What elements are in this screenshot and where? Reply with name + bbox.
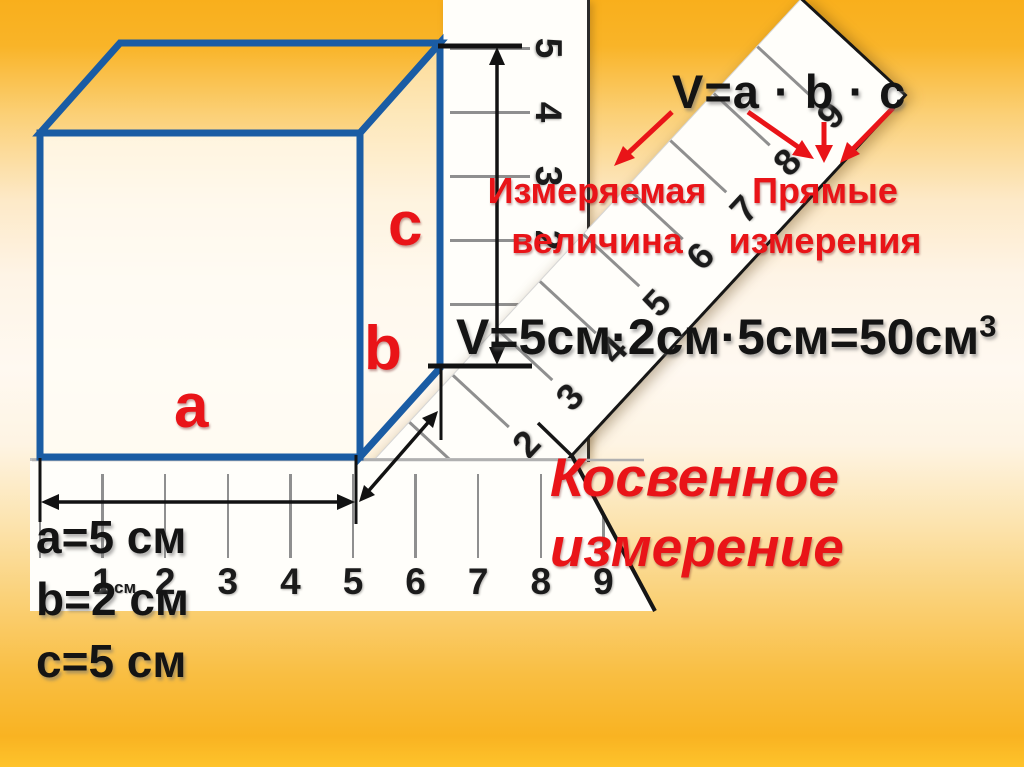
diagonal-ruler-tick <box>452 375 509 428</box>
cube-edge-label-c: c <box>388 194 422 256</box>
hruler-tick <box>289 474 292 558</box>
hruler-number: 5 <box>331 561 375 603</box>
hruler-tick <box>540 474 543 558</box>
hruler-tick <box>352 474 355 558</box>
volume-calculation-exponent: 3 <box>979 308 996 343</box>
direct-measurements-line1: Прямые <box>700 166 950 216</box>
indirect-measurement-line1: Косвенное <box>550 442 844 512</box>
dimension-a-value: a=5 см <box>36 510 186 564</box>
hruler-number: 6 <box>394 561 438 603</box>
vruler-number: 4 <box>527 90 569 134</box>
dimension-c-value: c=5 см <box>36 634 186 688</box>
slide-canvas: 54321 23456789 123456789см <box>0 0 1024 767</box>
hruler-number: 4 <box>268 561 312 603</box>
measured-quantity-line1: Измеряемая <box>452 166 742 216</box>
indirect-measurement-label: Косвенное измерение <box>550 442 844 582</box>
cube <box>40 43 440 457</box>
volume-calculation-base: V=5см·2см·5см=50см <box>456 309 979 365</box>
dimension-b-value: b=2 см <box>36 572 189 626</box>
hruler-tick <box>227 474 230 558</box>
vruler-tick <box>450 111 530 114</box>
volume-formula: V=a · b · c <box>672 64 906 119</box>
hruler-number: 3 <box>206 561 250 603</box>
hruler-number: 7 <box>456 561 500 603</box>
volume-calculation: V=5см·2см·5см=50см3 <box>456 308 997 366</box>
cube-edge-label-b: b <box>364 318 402 380</box>
indirect-measurement-line2: измерение <box>550 512 844 582</box>
measured-quantity-label: Измеряемая величина <box>452 166 742 266</box>
direct-measurements-label: Прямые измерения <box>700 166 950 266</box>
vruler-number: 5 <box>527 26 569 70</box>
cube-edge-label-a: a <box>174 376 208 438</box>
cube-top-face <box>40 43 440 133</box>
direct-measurements-line2: измерения <box>700 216 950 266</box>
hruler-tick <box>477 474 480 558</box>
measured-quantity-line2: величина <box>452 216 742 266</box>
vruler-tick <box>450 47 530 50</box>
hruler-tick <box>414 474 417 558</box>
